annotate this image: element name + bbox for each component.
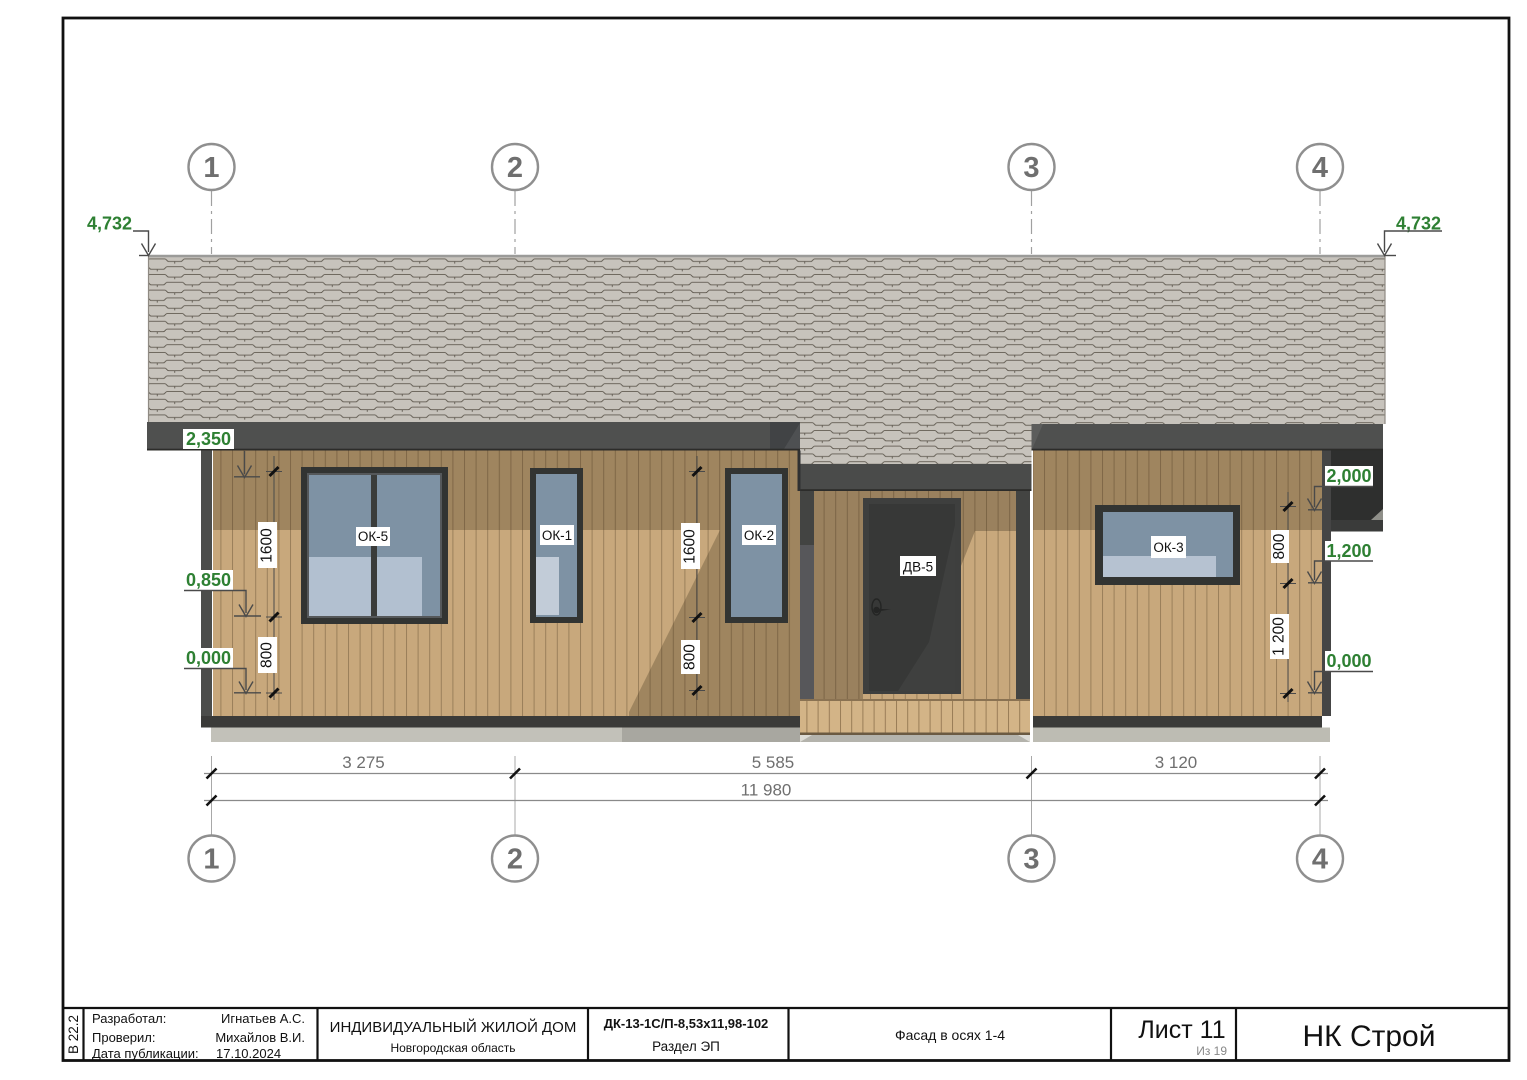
svg-text:ДВ-5: ДВ-5 [903, 560, 933, 575]
svg-text:4: 4 [1312, 152, 1328, 184]
svg-text:ИНДИВИДУАЛЬНЫЙ ЖИЛОЙ ДОМ: ИНДИВИДУАЛЬНЫЙ ЖИЛОЙ ДОМ [330, 1018, 577, 1036]
svg-text:ОК-3: ОК-3 [1153, 540, 1183, 555]
svg-text:3 275: 3 275 [342, 753, 385, 772]
svg-text:Раздел ЭП: Раздел ЭП [652, 1039, 720, 1054]
svg-text:1: 1 [203, 152, 219, 184]
svg-text:НК Строй: НК Строй [1302, 1020, 1435, 1053]
svg-text:2,000: 2,000 [1326, 466, 1371, 486]
svg-text:Игнатьев А.С.: Игнатьев А.С. [221, 1011, 305, 1026]
svg-text:Лист 11: Лист 11 [1138, 1016, 1225, 1044]
svg-text:ДК-13-1С/П-8,53х11,98-102: ДК-13-1С/П-8,53х11,98-102 [604, 1016, 769, 1031]
svg-text:ОК-1: ОК-1 [542, 528, 572, 543]
svg-text:4,732: 4,732 [87, 214, 132, 234]
svg-text:2: 2 [507, 844, 523, 876]
svg-text:ОК-2: ОК-2 [744, 528, 774, 543]
svg-text:3: 3 [1023, 844, 1039, 876]
svg-text:Дата публикации:: Дата публикации: [92, 1046, 199, 1061]
svg-text:Новгородская область: Новгородская область [390, 1041, 515, 1055]
svg-text:4: 4 [1312, 844, 1328, 876]
svg-text:3 120: 3 120 [1155, 753, 1198, 772]
svg-text:Михайлов В.И.: Михайлов В.И. [215, 1030, 305, 1045]
svg-text:1600: 1600 [682, 529, 699, 564]
svg-text:1600: 1600 [259, 528, 276, 563]
svg-text:2: 2 [507, 152, 523, 184]
svg-text:800: 800 [259, 642, 276, 668]
svg-text:2,350: 2,350 [186, 429, 231, 449]
svg-text:800: 800 [682, 644, 699, 670]
svg-text:0,850: 0,850 [186, 570, 231, 590]
svg-text:Проверил:: Проверил: [92, 1030, 155, 1045]
svg-text:1,200: 1,200 [1326, 541, 1371, 561]
svg-text:5 585: 5 585 [752, 753, 795, 772]
svg-text:1 200: 1 200 [1271, 617, 1288, 656]
svg-text:Разработал:: Разработал: [92, 1011, 166, 1026]
svg-text:Фасад в осях 1-4: Фасад в осях 1-4 [895, 1027, 1005, 1043]
svg-text:3: 3 [1023, 152, 1039, 184]
svg-text:11 980: 11 980 [741, 781, 792, 800]
svg-text:В 22.2: В 22.2 [66, 1015, 81, 1054]
svg-text:800: 800 [1271, 533, 1288, 559]
svg-text:ОК-5: ОК-5 [358, 529, 388, 544]
svg-text:0,000: 0,000 [186, 648, 231, 668]
svg-text:Из 19: Из 19 [1196, 1044, 1227, 1058]
svg-text:1: 1 [203, 844, 219, 876]
svg-text:17.10.2024: 17.10.2024 [216, 1046, 281, 1061]
svg-text:0,000: 0,000 [1326, 651, 1371, 671]
